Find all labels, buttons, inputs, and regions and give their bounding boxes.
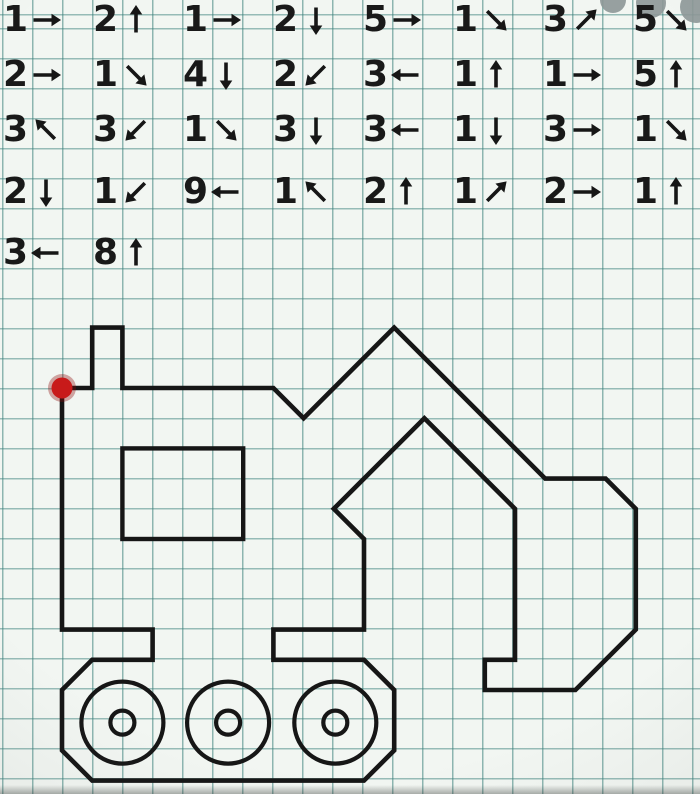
direction-arrow-icon-n (480, 59, 512, 91)
instruction-step: 5 (363, 0, 422, 42)
instruction-step: 3 (363, 108, 422, 152)
direction-arrow-icon-s (30, 176, 62, 208)
instruction-step: 1 (453, 108, 512, 152)
direction-arrow-icon-se (120, 59, 152, 91)
direction-arrow-icon-nw (30, 114, 62, 146)
step-count: 2 (273, 2, 297, 38)
step-count: 2 (363, 174, 387, 210)
step-count: 1 (3, 2, 27, 38)
wheel-hub-circle (110, 711, 134, 735)
instruction-step: 3 (3, 231, 62, 275)
wheel-outer-circle (81, 682, 163, 764)
instruction-step: 5 (633, 0, 692, 42)
instruction-step: 2 (93, 0, 152, 42)
direction-arrow-icon-e (390, 4, 422, 36)
instruction-step: 1 (543, 53, 602, 97)
step-count: 5 (363, 2, 387, 38)
direction-arrow-icon-w (210, 176, 242, 208)
direction-arrow-icon-n (120, 4, 152, 36)
instruction-step: 9 (183, 170, 242, 214)
step-count: 1 (543, 57, 567, 93)
direction-arrow-icon-sw (300, 59, 332, 91)
step-count: 8 (93, 235, 117, 271)
instruction-step: 2 (273, 53, 332, 97)
step-count: 1 (183, 112, 207, 148)
step-count: 2 (3, 174, 27, 210)
instruction-step: 1 (633, 170, 692, 214)
step-count: 3 (3, 235, 27, 271)
direction-arrow-icon-w (390, 114, 422, 146)
direction-arrow-icon-e (570, 59, 602, 91)
direction-arrow-icon-nw (300, 176, 332, 208)
step-count: 9 (183, 174, 207, 210)
instruction-step: 1 (3, 0, 62, 42)
direction-arrow-icon-s (300, 114, 332, 146)
direction-arrow-icon-e (30, 4, 62, 36)
step-count: 5 (633, 2, 657, 38)
direction-arrow-icon-e (570, 114, 602, 146)
direction-arrow-icon-ne (570, 4, 602, 36)
direction-arrow-icon-e (570, 176, 602, 208)
instruction-step: 1 (453, 170, 512, 214)
instruction-step: 3 (543, 0, 602, 42)
wheel-outer-circle (187, 682, 269, 764)
direction-arrow-icon-se (660, 114, 692, 146)
instruction-step: 3 (3, 108, 62, 152)
wheel-hub-circle (323, 711, 347, 735)
step-count: 3 (363, 112, 387, 148)
step-count: 3 (363, 57, 387, 93)
step-count: 3 (93, 112, 117, 148)
instruction-step: 1 (633, 108, 692, 152)
direction-arrow-icon-sw (120, 176, 152, 208)
step-count: 1 (453, 2, 477, 38)
step-count: 1 (273, 174, 297, 210)
step-count: 1 (183, 2, 207, 38)
step-count: 3 (3, 112, 27, 148)
step-count: 4 (183, 57, 207, 93)
step-count: 2 (93, 2, 117, 38)
start-point-dot (52, 378, 73, 399)
instruction-step: 1 (453, 0, 512, 42)
instruction-step: 1 (183, 108, 242, 152)
watermark-circle (600, 0, 626, 13)
instruction-step: 1 (273, 170, 332, 214)
excavator-outline (62, 328, 636, 781)
step-count: 2 (543, 174, 567, 210)
direction-arrow-icon-n (660, 176, 692, 208)
direction-arrow-icon-n (120, 237, 152, 269)
instruction-step: 1 (93, 53, 152, 97)
step-count: 1 (93, 57, 117, 93)
step-count: 5 (633, 57, 657, 93)
instruction-step: 2 (543, 170, 602, 214)
instruction-step: 3 (363, 53, 422, 97)
wheel-hub-circle (216, 711, 240, 735)
direction-arrow-icon-e (30, 59, 62, 91)
step-count: 3 (273, 112, 297, 148)
instruction-step: 2 (363, 170, 422, 214)
worksheet-photo: 1212513521423115331331312191212138 (0, 0, 700, 794)
direction-arrow-icon-ne (480, 176, 512, 208)
step-count: 1 (633, 112, 657, 148)
instruction-step: 1 (183, 0, 242, 42)
instruction-step: 3 (93, 108, 152, 152)
direction-arrow-icon-s (480, 114, 512, 146)
instruction-step: 8 (93, 231, 152, 275)
direction-arrow-icon-n (660, 59, 692, 91)
instruction-step: 1 (93, 170, 152, 214)
step-count: 1 (453, 174, 477, 210)
direction-arrow-icon-sw (120, 114, 152, 146)
wheel-outer-circle (294, 682, 376, 764)
instruction-step: 2 (273, 0, 332, 42)
instruction-step: 4 (183, 53, 242, 97)
instruction-step: 2 (3, 53, 62, 97)
step-count: 2 (3, 57, 27, 93)
direction-arrow-icon-e (210, 4, 242, 36)
direction-arrow-icon-s (210, 59, 242, 91)
step-count: 1 (633, 174, 657, 210)
direction-arrow-icon-se (210, 114, 242, 146)
step-count: 2 (273, 57, 297, 93)
instruction-step: 5 (633, 53, 692, 97)
direction-arrow-icon-n (390, 176, 422, 208)
cab-window (122, 448, 243, 539)
instruction-step: 1 (453, 53, 512, 97)
direction-arrow-icon-se (480, 4, 512, 36)
step-count: 1 (93, 174, 117, 210)
step-count: 1 (453, 112, 477, 148)
instruction-step: 3 (273, 108, 332, 152)
instruction-step: 2 (3, 170, 62, 214)
direction-arrow-icon-se (660, 4, 692, 36)
direction-arrow-icon-w (390, 59, 422, 91)
direction-arrow-icon-w (30, 237, 62, 269)
step-count: 1 (453, 57, 477, 93)
instruction-step: 3 (543, 108, 602, 152)
direction-arrow-icon-s (300, 4, 332, 36)
step-count: 3 (543, 112, 567, 148)
step-count: 3 (543, 2, 567, 38)
